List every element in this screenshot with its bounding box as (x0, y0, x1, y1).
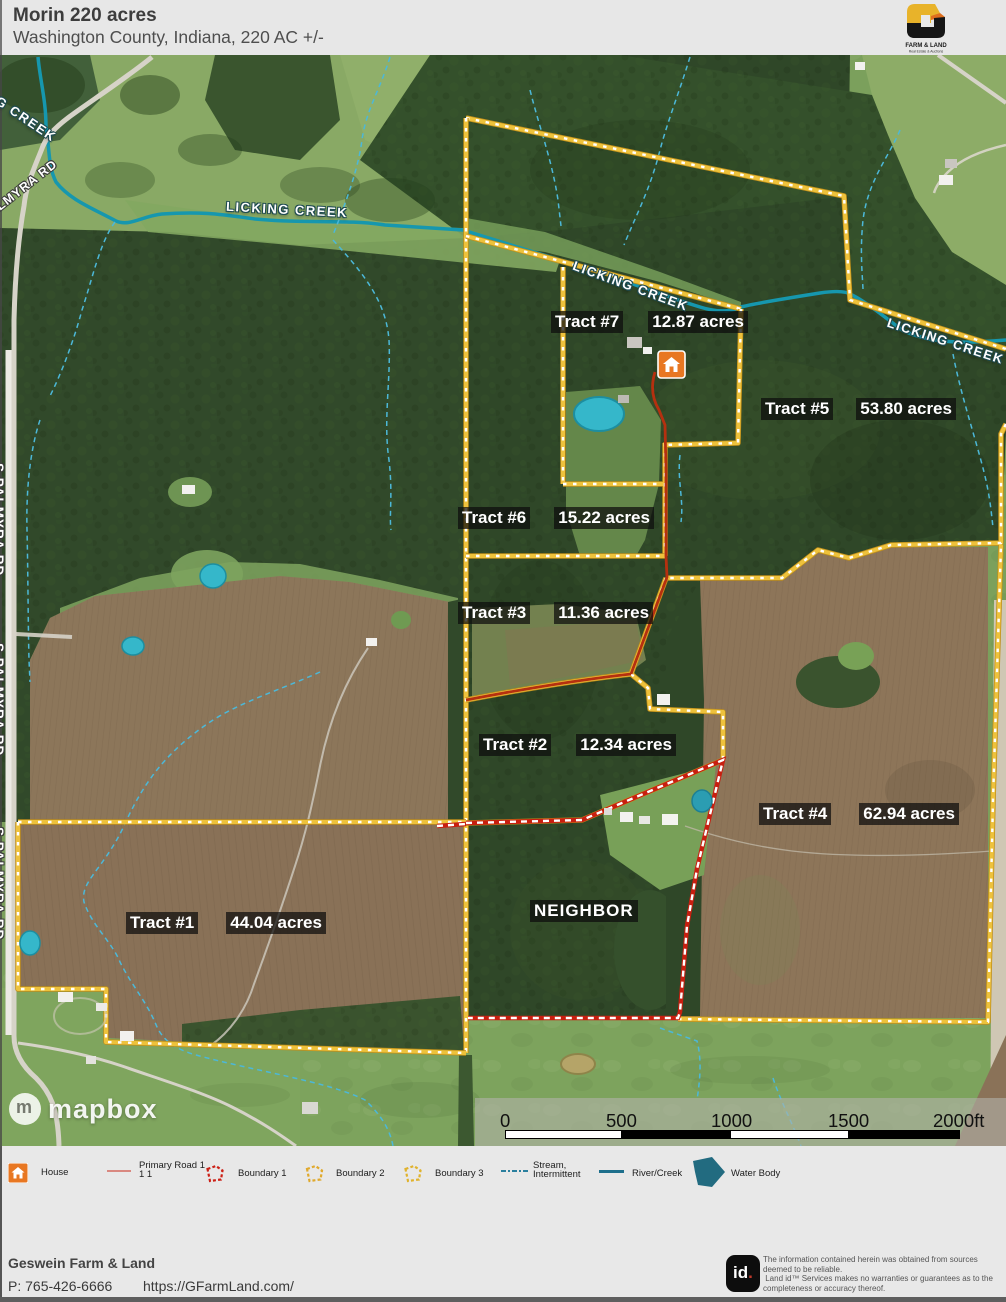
svg-text:Real Estate & Auctions: Real Estate & Auctions (909, 50, 944, 54)
svg-text:FARM & LAND: FARM & LAND (905, 43, 947, 49)
